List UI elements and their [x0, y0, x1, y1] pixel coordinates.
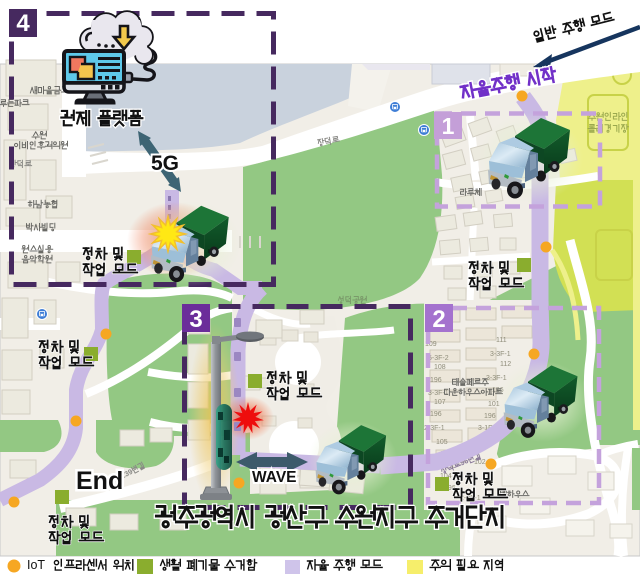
- svg-text:IoT: IoT: [27, 558, 45, 572]
- svg-text:3-3F-1: 3-3F-1: [428, 390, 449, 397]
- svg-text:4: 4: [16, 10, 30, 37]
- svg-text:107: 107: [434, 399, 446, 406]
- svg-text:108: 108: [434, 364, 446, 371]
- svg-text:End: End: [76, 467, 123, 495]
- svg-text:196: 196: [430, 377, 442, 384]
- svg-text:196: 196: [430, 411, 442, 418]
- svg-text:105: 105: [436, 439, 448, 446]
- svg-text:3: 3: [189, 306, 202, 333]
- svg-text:2: 2: [432, 306, 445, 333]
- svg-text:WAVE: WAVE: [252, 469, 297, 486]
- svg-text:102: 102: [474, 459, 486, 466]
- svg-text:111: 111: [496, 337, 507, 344]
- svg-text:5-3F-2: 5-3F-2: [428, 355, 449, 362]
- svg-text:112: 112: [500, 361, 511, 368]
- svg-text:3-3F-1: 3-3F-1: [490, 351, 511, 358]
- svg-text:196: 196: [484, 413, 496, 420]
- svg-text:1: 1: [442, 113, 455, 139]
- svg-text:5G: 5G: [151, 152, 179, 175]
